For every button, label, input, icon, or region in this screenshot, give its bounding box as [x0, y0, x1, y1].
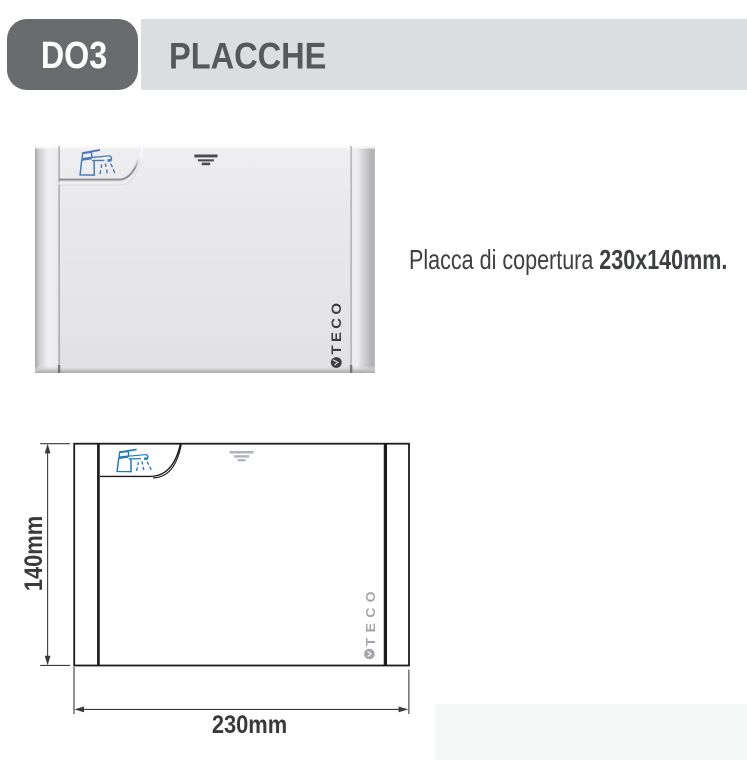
svg-text:230mm: 230mm — [212, 711, 287, 739]
svg-text:TECO: TECO — [364, 586, 378, 646]
svg-text:140mm: 140mm — [20, 516, 48, 591]
svg-text:TECO: TECO — [330, 300, 345, 355]
